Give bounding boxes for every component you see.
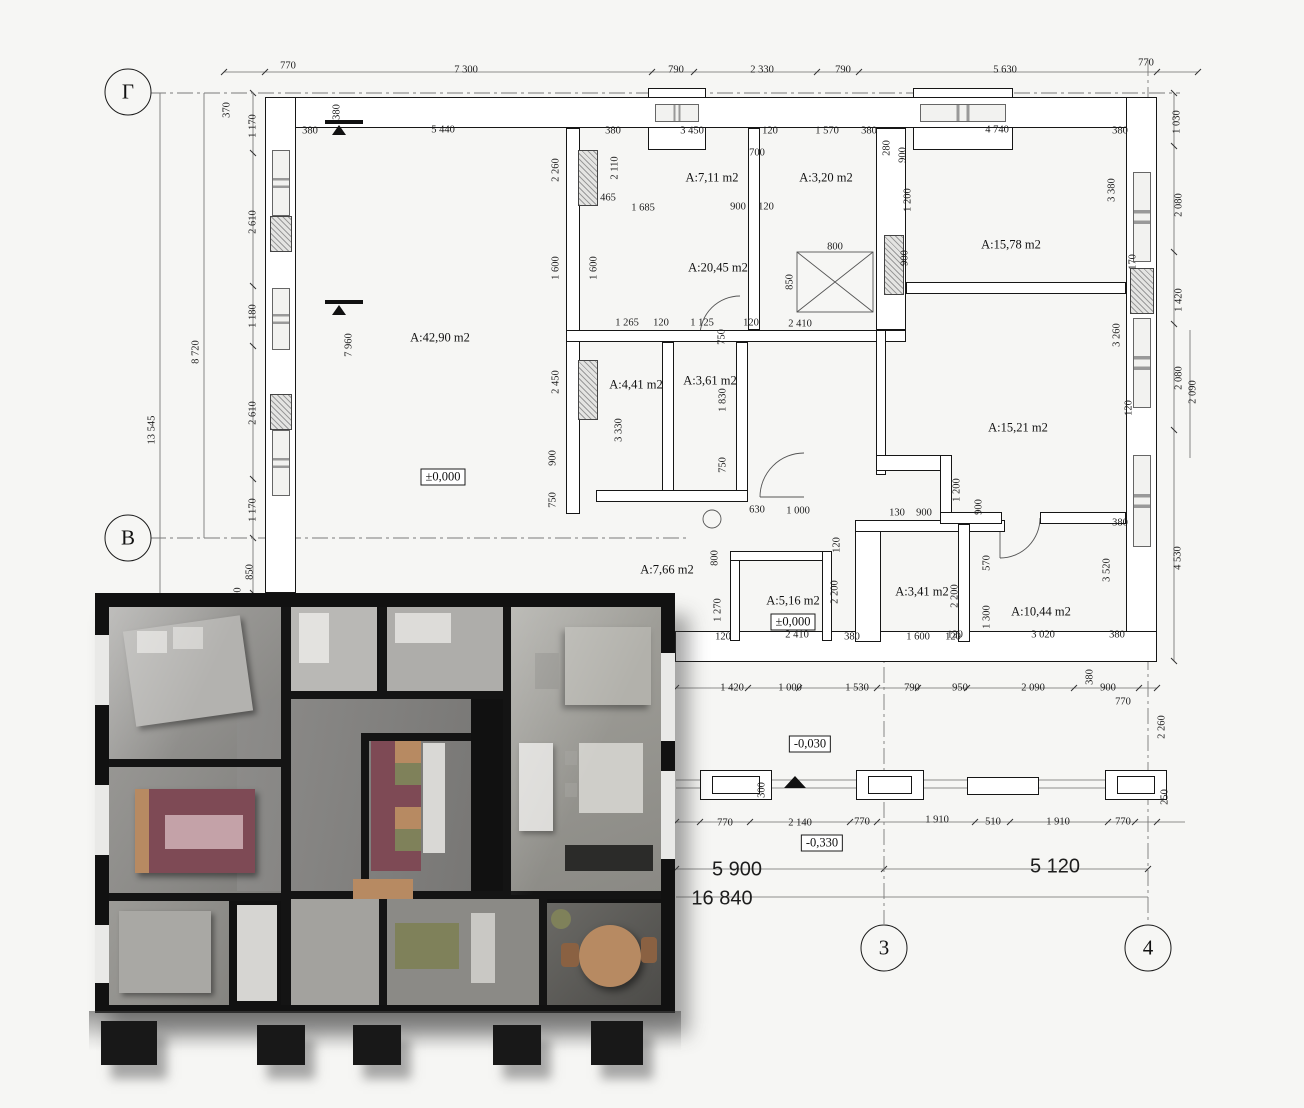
render-footing: [591, 1021, 643, 1065]
wardrobe: [237, 905, 277, 1001]
render-wall: [291, 691, 505, 699]
render-overlay: [95, 593, 675, 1065]
washer: [395, 613, 451, 643]
desk-bottommid: [471, 913, 495, 983]
axis-marker-3: 3: [861, 925, 908, 972]
window-frame: [661, 771, 675, 859]
render-footing: [101, 1021, 157, 1065]
axis-marker-Г: Г: [105, 69, 152, 116]
render-footing: [257, 1025, 305, 1065]
round-table: [579, 925, 641, 987]
axis-marker-4: 4: [1125, 925, 1172, 972]
green-bench: [395, 923, 459, 969]
terrace-plant: [551, 909, 571, 929]
bed-small: [119, 911, 211, 993]
table-chair: [561, 943, 579, 967]
floor-plan-sheet: 7707 3007902 3307905 6307703805 4403803 …: [0, 0, 1304, 1108]
pantry-shelf-maroon: [371, 741, 395, 871]
bed-maroon-frame: [135, 789, 149, 873]
table-chair: [641, 937, 657, 963]
render-wall: [109, 893, 281, 901]
window-frame: [95, 635, 109, 705]
render-footing: [353, 1025, 401, 1065]
pantry-shelf-mixed: [395, 741, 421, 871]
window-frame: [95, 785, 109, 855]
window-frame: [95, 925, 109, 983]
render-wall: [361, 733, 369, 891]
render-wall: [379, 607, 387, 691]
render-footing: [493, 1025, 541, 1065]
render-wall: [361, 733, 471, 741]
render-wall: [379, 899, 387, 1005]
bed-maroon-blanket: [165, 815, 243, 849]
render-room-bottommid-1: [291, 899, 379, 1005]
pantry-shelf-white: [423, 743, 445, 853]
light-sheen: [511, 607, 661, 895]
render-wall: [281, 607, 291, 1005]
bath-fixtures: [299, 613, 329, 663]
light-sheen: [109, 607, 281, 759]
render-floor-plate: [95, 593, 675, 1013]
axis-marker-В: В: [105, 515, 152, 562]
window-frame: [661, 653, 675, 741]
render-wall: [503, 607, 511, 895]
render-wall: [109, 759, 281, 767]
sideboard: [353, 879, 413, 899]
render-wall: [539, 899, 547, 1005]
